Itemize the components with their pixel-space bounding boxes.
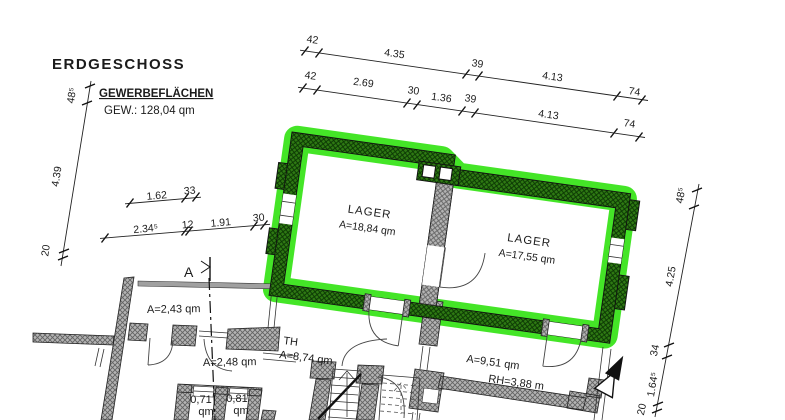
vent-left	[422, 165, 436, 179]
dim-mid-lower-0: 2.34⁵	[133, 222, 159, 236]
header-block: ERDGESCHOSS GEWERBEFLÄCHEN GEW.: 128,04 …	[52, 56, 213, 117]
dim-mid-lower-3: 30	[252, 212, 265, 225]
dim-right-0: 48⁵	[674, 187, 689, 205]
dim-top-inner-5: 4.13	[537, 108, 559, 123]
room-area-951: A=9,51 qm	[466, 353, 521, 372]
dim-right-4: 20	[635, 402, 649, 416]
section-flag-icon	[201, 261, 210, 273]
vent-right	[439, 167, 453, 181]
dim-left-2: 20	[39, 244, 53, 258]
dim-top-outer-2: 39	[471, 57, 484, 71]
section-marker-label: A	[184, 264, 194, 280]
room-area-th: A=8,74 qm	[279, 349, 334, 367]
closet-left-area: 0,71	[190, 394, 211, 406]
floor-plan-canvas: LAGER A=18,84 qm LAGER A=17,55 qm A 42 4…	[0, 0, 785, 420]
room-label-lager-left: LAGER	[347, 204, 392, 222]
room-area-lager-left: A=18,84 qm	[338, 219, 396, 239]
green-building: LAGER A=18,84 qm LAGER A=17,55 qm	[256, 131, 643, 377]
room-area-248: A=2,48 qm	[203, 356, 257, 369]
dim-top-inner-3: 1.36	[430, 91, 452, 106]
dim-right-3: 1.64⁵	[645, 371, 661, 398]
dim-mid-lower-1: 12	[181, 219, 194, 232]
dim-top-outer-3: 4.13	[541, 70, 563, 85]
subtitle: GEWERBEFLÄCHEN	[99, 87, 213, 100]
room-label-lager-right: LAGER	[507, 232, 552, 250]
dim-top-inner-4: 39	[464, 92, 477, 106]
floor-plan-page: LAGER A=18,84 qm LAGER A=17,55 qm A 42 4…	[0, 0, 785, 420]
total-area: GEW.: 128,04 qm	[104, 105, 195, 117]
dim-mid-upper-0: 1.62	[146, 189, 168, 203]
closet-right-area: 0,81	[226, 393, 247, 405]
room-area-lager-right: A=17,55 qm	[498, 247, 556, 267]
room-area-243: A=2,43 qm	[147, 303, 201, 316]
green-walls	[260, 131, 642, 345]
dim-right-2: 34	[648, 343, 662, 357]
dim-top-outer-1: 4.35	[383, 47, 405, 62]
dim-mid-lower-2: 1.91	[210, 216, 232, 230]
page-title: ERDGESCHOSS	[52, 56, 185, 73]
room-label-th: TH	[283, 335, 299, 349]
dim-top-inner-6: 74	[623, 117, 636, 131]
closet-left-unit: qm	[198, 406, 213, 418]
north-arrow-icon	[595, 351, 632, 397]
stair-steps-lower	[328, 377, 360, 419]
closet-right-unit: qm	[233, 405, 248, 417]
dim-right-1: 4.25	[663, 265, 678, 287]
dim-top-inner-1: 2.69	[352, 76, 374, 91]
dim-top-outer-4: 74	[628, 85, 641, 99]
dim-top-outer-0: 42	[306, 33, 319, 47]
dim-left-0: 48⁵	[65, 87, 79, 105]
dim-mid-upper-1: 33	[183, 185, 196, 198]
dim-left-1: 4.39	[50, 165, 65, 187]
dim-top-inner-0: 42	[304, 69, 317, 83]
dim-top-inner-2: 30	[407, 84, 420, 98]
